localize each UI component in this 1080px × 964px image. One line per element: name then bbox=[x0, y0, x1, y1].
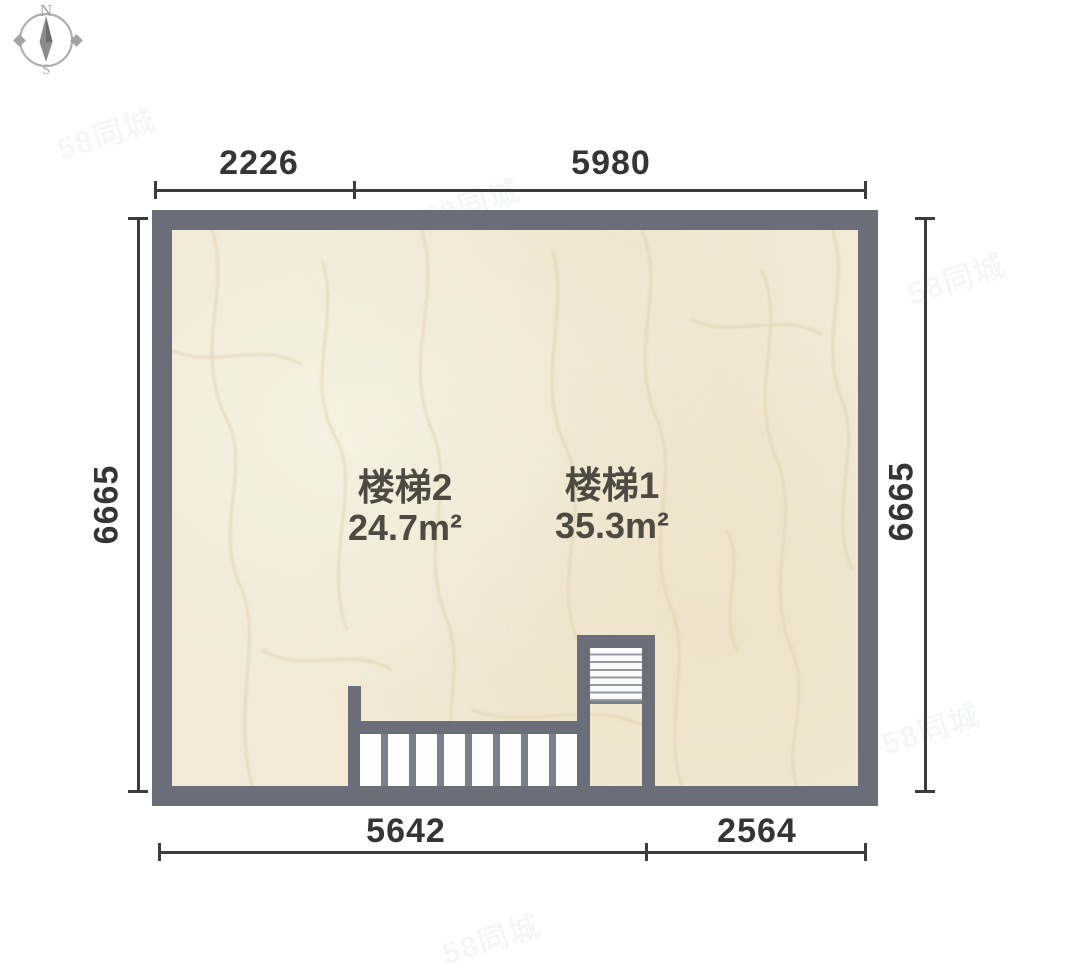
watermark: 58同城 bbox=[876, 690, 986, 763]
dim-label-left: 6665 bbox=[88, 435, 127, 575]
dim-tick bbox=[353, 181, 356, 199]
dim-line-top bbox=[154, 189, 867, 192]
room-area: 24.7m² bbox=[295, 508, 515, 548]
stair1-treads bbox=[590, 648, 642, 704]
stair2-treads bbox=[360, 734, 577, 786]
stair1-right-wall bbox=[642, 635, 655, 786]
room-area: 35.3m² bbox=[502, 506, 722, 546]
dim-label-top-right: 5980 bbox=[541, 144, 681, 183]
stair2-top-wall bbox=[348, 721, 577, 734]
dim-line-bottom bbox=[158, 851, 867, 854]
stair-wall-left bbox=[577, 635, 590, 786]
room-label-stair1: 楼梯1 35.3m² bbox=[502, 466, 722, 546]
dim-label-bottom-right: 2564 bbox=[687, 812, 827, 851]
dim-tick bbox=[158, 843, 161, 861]
dim-label-bottom-left: 5642 bbox=[336, 812, 476, 851]
room-name: 楼梯1 bbox=[502, 466, 722, 506]
dim-tick bbox=[864, 843, 867, 861]
watermark: 58同城 bbox=[901, 240, 1011, 313]
compass-north-letter: N bbox=[40, 2, 52, 20]
dim-label-right: 6665 bbox=[883, 432, 922, 572]
dim-line-left bbox=[137, 218, 140, 792]
dim-tick bbox=[154, 181, 157, 199]
floor-plan-screenshot: N S 58同城 58同城 58同城 58同城 58同城 58同城 58同城 bbox=[0, 0, 1080, 964]
dim-tick bbox=[128, 790, 148, 793]
dim-tick bbox=[645, 843, 648, 861]
watermark: 58同城 bbox=[51, 95, 161, 168]
dim-tick bbox=[864, 181, 867, 199]
dim-tick bbox=[915, 217, 935, 220]
dim-line-right bbox=[924, 218, 927, 792]
compass-south-letter: S bbox=[42, 62, 50, 78]
dim-tick bbox=[915, 790, 935, 793]
watermark: 58同城 bbox=[436, 900, 546, 964]
dim-label-top-left: 2226 bbox=[189, 144, 329, 183]
compass-icon: N S bbox=[12, 2, 84, 78]
room-name: 楼梯2 bbox=[295, 468, 515, 508]
room-label-stair2: 楼梯2 24.7m² bbox=[295, 468, 515, 548]
dim-tick bbox=[128, 217, 148, 220]
